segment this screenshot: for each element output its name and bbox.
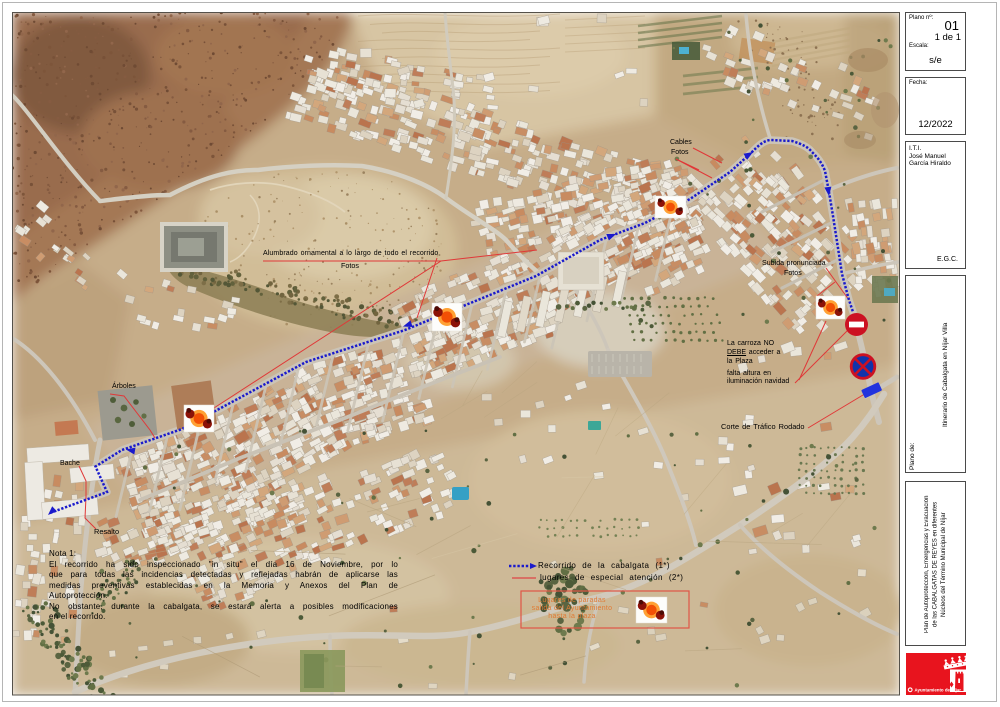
svg-text:Ayuntamiento de Níjar: Ayuntamiento de Níjar [915,688,962,693]
